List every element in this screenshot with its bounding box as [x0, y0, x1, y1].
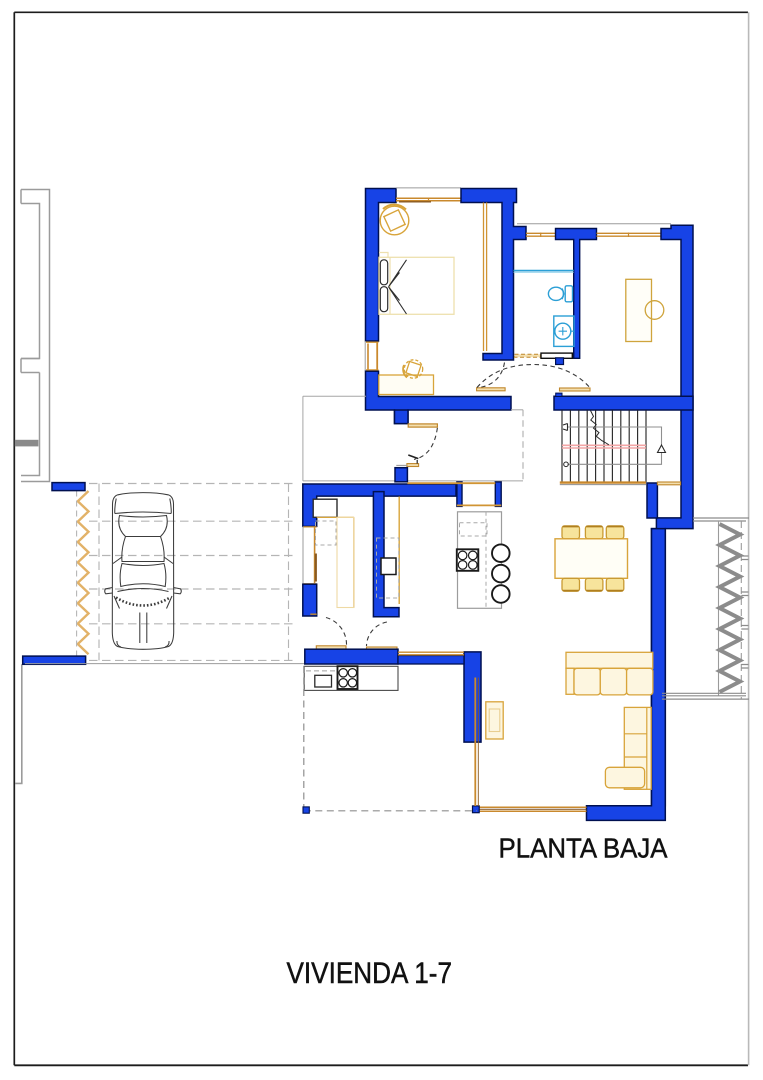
svg-text:VIVIENDA 1-7: VIVIENDA 1-7: [287, 957, 453, 990]
svg-text:PLANTA BAJA: PLANTA BAJA: [499, 832, 668, 863]
